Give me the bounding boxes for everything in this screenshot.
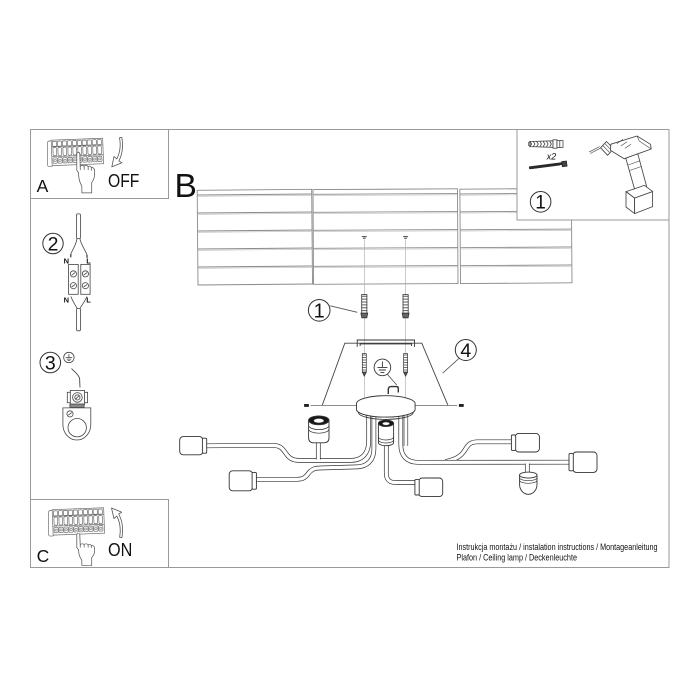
svg-text:Plafon / Ceiling lamp / Decken: Plafon / Ceiling lamp / Deckenleuchte — [457, 552, 578, 562]
svg-text:N: N — [64, 296, 69, 305]
svg-text:4: 4 — [460, 340, 471, 362]
svg-text:C: C — [37, 546, 50, 566]
svg-text:3: 3 — [45, 353, 56, 375]
svg-text:OFF: OFF — [108, 170, 139, 191]
svg-text:2: 2 — [48, 234, 59, 256]
svg-text:ON: ON — [108, 539, 132, 560]
svg-text:1: 1 — [535, 193, 546, 214]
svg-text:Instrukcja montażu / instalati: Instrukcja montażu / instalation instruc… — [457, 542, 658, 552]
svg-text:x2: x2 — [546, 152, 557, 162]
svg-text:1: 1 — [314, 300, 325, 322]
svg-text:A: A — [37, 176, 49, 196]
svg-text:B: B — [175, 168, 197, 205]
svg-text:N: N — [64, 257, 69, 266]
